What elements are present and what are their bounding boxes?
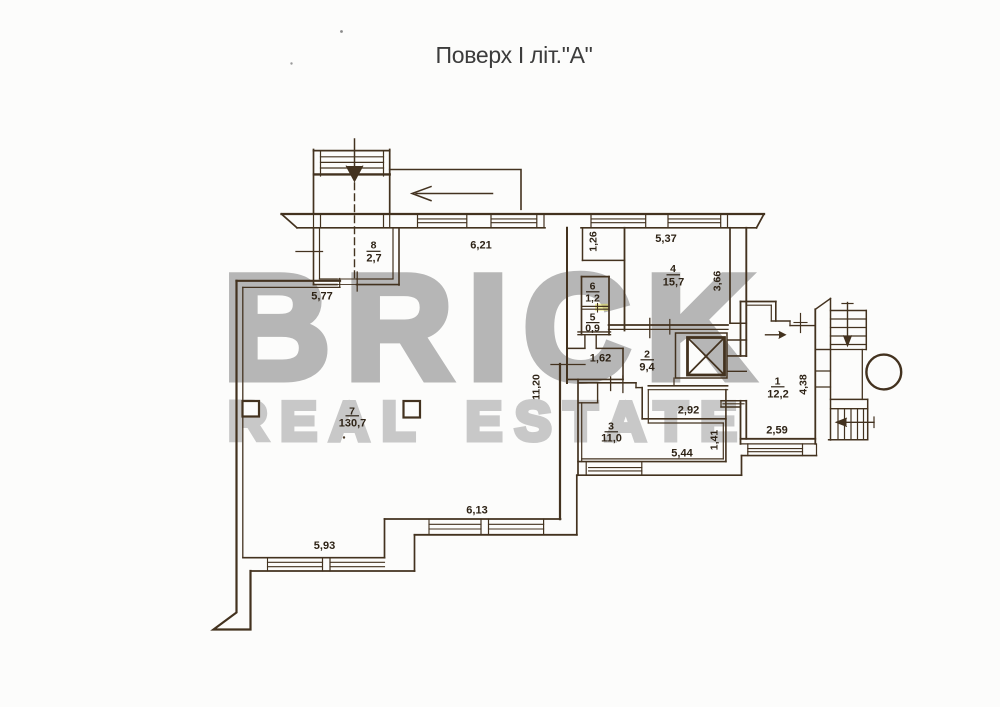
svg-text:5,93: 5,93 [314, 540, 335, 552]
svg-text:5,77: 5,77 [311, 291, 332, 303]
svg-text:2: 2 [644, 348, 650, 360]
svg-text:1,26: 1,26 [588, 231, 600, 252]
svg-text:1,2: 1,2 [585, 293, 600, 305]
svg-text:2,7: 2,7 [366, 253, 381, 265]
svg-text:6,21: 6,21 [470, 240, 491, 252]
svg-text:6,13: 6,13 [466, 505, 487, 517]
svg-text:15,7: 15,7 [663, 277, 684, 289]
svg-text:11,0: 11,0 [601, 433, 622, 445]
svg-text:Поверх І літ."А": Поверх І літ."А" [435, 42, 592, 68]
svg-text:4,38: 4,38 [798, 374, 810, 395]
svg-text:2,92: 2,92 [678, 405, 699, 417]
svg-text:1,41: 1,41 [709, 430, 721, 451]
svg-text:11,20: 11,20 [531, 374, 543, 400]
svg-text:2,59: 2,59 [766, 425, 787, 437]
svg-text:REAL ESTATE: REAL ESTATE [228, 390, 749, 452]
svg-text:4: 4 [670, 263, 676, 275]
svg-text:3,66: 3,66 [712, 271, 724, 292]
svg-text:5,37: 5,37 [655, 233, 676, 245]
svg-text:5,44: 5,44 [671, 448, 693, 460]
svg-text:6: 6 [590, 280, 596, 292]
svg-text:1,62: 1,62 [590, 353, 611, 365]
svg-text:3: 3 [608, 420, 614, 432]
svg-text:8: 8 [371, 240, 377, 252]
svg-text:130,7: 130,7 [339, 418, 367, 430]
svg-text:1: 1 [775, 375, 781, 387]
svg-text:0,9: 0,9 [585, 322, 600, 334]
svg-text:9,4: 9,4 [639, 362, 655, 374]
svg-text:12,2: 12,2 [767, 389, 788, 401]
